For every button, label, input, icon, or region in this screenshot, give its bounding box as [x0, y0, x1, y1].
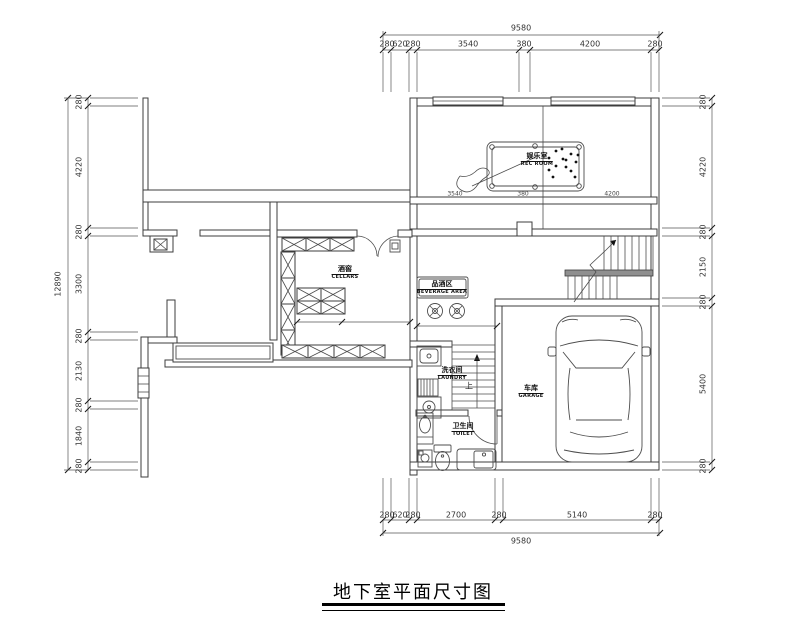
dim-label: 280 [647, 40, 662, 49]
dim-label: 2130 [75, 361, 84, 381]
dim-label: 280 [405, 511, 420, 520]
dim-label: 280 [699, 224, 708, 239]
room-label-rec-room: 娱乐室 REC ROOM [521, 152, 553, 168]
dim-label: 280 [699, 458, 708, 473]
dim-label: 280 [75, 328, 84, 343]
dim-label: 380 [516, 40, 531, 49]
title-rule-thin [322, 610, 505, 611]
dim-label: 380 [517, 191, 528, 198]
dim-label: 3540 [447, 191, 462, 198]
room-label-toilet: 卫生间 TOILET [452, 422, 475, 438]
dim-label-left-total: 12890 [54, 271, 63, 296]
room-name-en: LAUNDRY [438, 376, 467, 382]
dim-label: 5400 [699, 374, 708, 394]
dim-label: 4220 [699, 157, 708, 177]
dim-label: 280 [699, 94, 708, 109]
room-label-laundry: 洗衣间 LAUNDRY [438, 366, 467, 382]
dim-label: 3300 [75, 274, 84, 294]
room-name-en: GARAGE [518, 394, 543, 400]
car [548, 316, 650, 462]
dim-label: 280 [491, 511, 506, 520]
dim-label: 2150 [699, 257, 708, 277]
dim-label: 280 [75, 94, 84, 109]
dim-label: 280 [699, 294, 708, 309]
room-name-en: BEVERAGE AREA [417, 290, 467, 296]
room-label-cellars: 酒窖 CELLARS [332, 265, 359, 281]
dim-label: 280 [405, 40, 420, 49]
title-rule-thick [322, 603, 505, 606]
dim-label-top-total: 9580 [511, 24, 531, 33]
dim-label: 280 [647, 511, 662, 520]
floor-plan-canvas: 9580 280 620 280 3540 380 4200 280 280 6… [0, 0, 800, 640]
dim-label: 280 [75, 224, 84, 239]
laundry-fixtures [417, 346, 441, 418]
floor-plan-drawing [0, 0, 800, 640]
dim-label: 280 [75, 458, 84, 473]
dim-label-bottom-total: 9580 [511, 537, 531, 546]
page-title: 地下室平面尺寸图 [333, 578, 493, 604]
stair-up-label: 上 [465, 381, 473, 392]
room-name-en: TOILET [452, 432, 475, 438]
room-name-en: CELLARS [332, 275, 359, 281]
interior-dimension-lines [294, 319, 500, 329]
dim-label: 4200 [604, 191, 619, 198]
dim-label: 2700 [446, 511, 466, 520]
room-label-beverage-area: 品酒区 BEVERAGE AREA [417, 280, 467, 296]
dim-label: 3540 [458, 40, 478, 49]
dim-label: 4200 [580, 40, 600, 49]
room-label-garage: 车库 GARAGE [518, 384, 543, 400]
dim-label: 5140 [567, 511, 587, 520]
dim-label: 280 [75, 397, 84, 412]
staircase-main [565, 236, 653, 302]
dim-label: 4220 [75, 157, 84, 177]
room-name-en: REC ROOM [521, 162, 553, 168]
dim-label: 1840 [75, 426, 84, 446]
